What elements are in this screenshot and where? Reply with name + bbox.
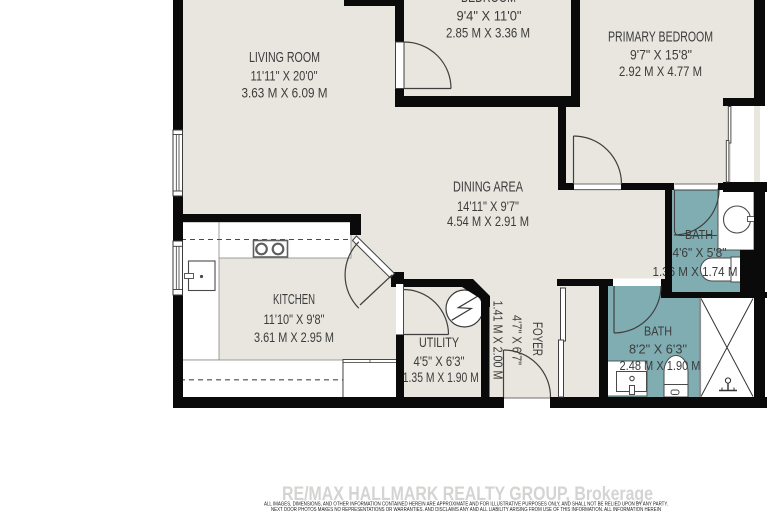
- svg-text:3.63 M X 6.09 M: 3.63 M X 6.09 M: [242, 85, 328, 101]
- svg-text:2.92 M X 4.77 M: 2.92 M X 4.77 M: [619, 63, 702, 79]
- svg-text:2.48 M X 1.90 M: 2.48 M X 1.90 M: [620, 358, 701, 373]
- svg-text:1.35 M X 1.90 M: 1.35 M X 1.90 M: [403, 369, 479, 385]
- svg-text:UTILITY: UTILITY: [419, 334, 460, 350]
- svg-text:LIVING ROOM: LIVING ROOM: [249, 49, 320, 66]
- svg-text:DINING AREA: DINING AREA: [453, 179, 523, 196]
- svg-text:NEXT DOOR PHOTOS MAKES NO REPR: NEXT DOOR PHOTOS MAKES NO REPRESENTATION…: [271, 507, 661, 511]
- svg-text:4'5" X 6'3": 4'5" X 6'3": [414, 353, 465, 369]
- svg-text:14'11" X 9'7": 14'11" X 9'7": [457, 198, 519, 214]
- svg-text:FOYER: FOYER: [530, 322, 546, 356]
- svg-text:BEDROOM: BEDROOM: [461, 0, 516, 6]
- svg-text:9'4" X 11'0": 9'4" X 11'0": [457, 8, 522, 24]
- svg-text:8'2" X 6'3": 8'2" X 6'3": [629, 342, 687, 357]
- svg-text:2.85 M X 3.36 M: 2.85 M X 3.36 M: [446, 25, 530, 41]
- svg-text:3.61 M X 2.95 M: 3.61 M X 2.95 M: [254, 329, 334, 345]
- svg-text:4'7" X 6'7": 4'7" X 6'7": [510, 315, 525, 365]
- svg-text:4.54 M X 2.91 M: 4.54 M X 2.91 M: [447, 213, 529, 229]
- svg-text:PRIMARY BEDROOM: PRIMARY BEDROOM: [608, 29, 713, 46]
- svg-text:11'11" X 20'0": 11'11" X 20'0": [251, 68, 318, 84]
- svg-text:KITCHEN: KITCHEN: [273, 291, 315, 308]
- svg-text:4'6" X 5'8": 4'6" X 5'8": [673, 245, 727, 260]
- svg-text:11'10" X 9'8": 11'10" X 9'8": [264, 311, 325, 327]
- svg-text:BATH: BATH: [685, 227, 713, 242]
- svg-text:BATH: BATH: [644, 324, 672, 339]
- svg-text:9'7" X 15'8": 9'7" X 15'8": [630, 47, 692, 63]
